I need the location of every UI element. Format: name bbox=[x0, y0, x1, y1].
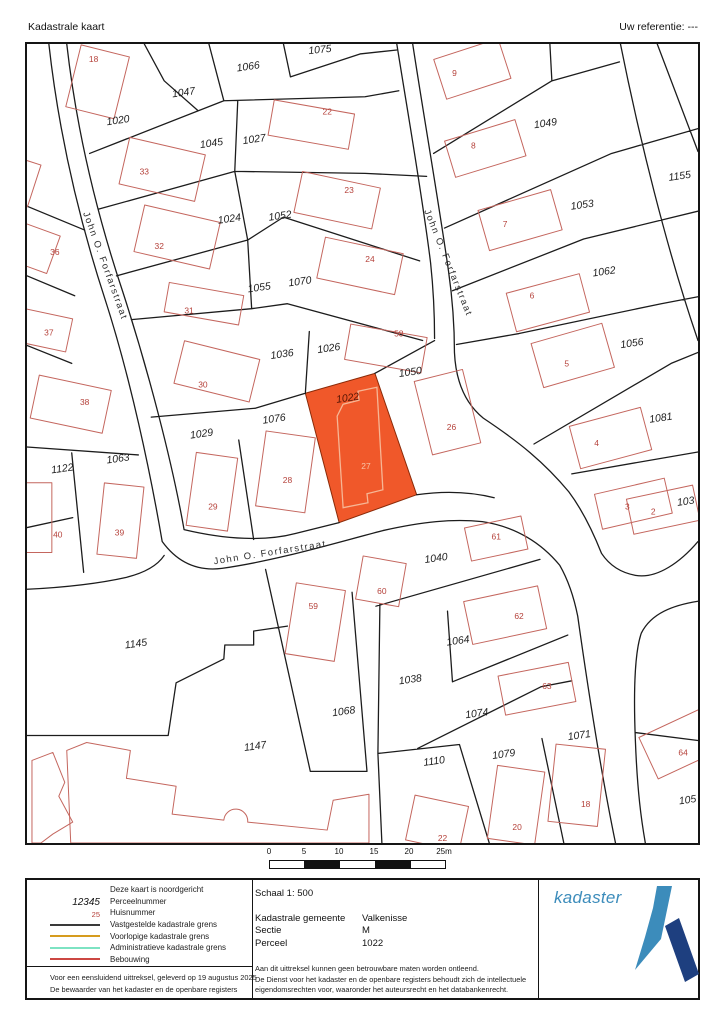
field-label: Perceel bbox=[255, 938, 362, 949]
legend-items: Deze kaart is noordgericht12345Perceelnu… bbox=[27, 884, 251, 965]
highlighted-house-number: 27 bbox=[361, 461, 371, 471]
parcel-number-label: 1040 bbox=[424, 552, 449, 566]
scalebar-segment bbox=[340, 861, 375, 868]
cadastral-map-svg: 1075106610471020104510271049115510531024… bbox=[27, 44, 698, 843]
legend-line bbox=[50, 924, 100, 926]
parcel-number-label: 1122 bbox=[51, 462, 75, 476]
map-canvas: 1075106610471020104510271049115510531024… bbox=[25, 42, 700, 845]
footer-line: De Dienst voor het kadaster en de openba… bbox=[255, 975, 526, 986]
house-number-label: 64 bbox=[678, 747, 688, 757]
legend-line-symbol bbox=[40, 947, 100, 949]
parcel-number-label: 1063 bbox=[106, 452, 131, 466]
logo-dark-shape bbox=[665, 918, 699, 982]
legend-item-label: Administratieve kadastrale grens bbox=[110, 943, 226, 952]
house-number-label: 63 bbox=[542, 681, 552, 691]
house-number-label: 59 bbox=[309, 601, 319, 611]
legend-box: Deze kaart is noordgericht12345Perceelnu… bbox=[25, 878, 700, 1000]
parcel-number-label: 1068 bbox=[331, 705, 356, 719]
legend-line-symbol bbox=[40, 958, 100, 960]
parcel-number-label: 1036 bbox=[270, 348, 295, 362]
parcel-number-label: 1110 bbox=[423, 755, 446, 769]
parcel-number-label: 103 bbox=[676, 496, 695, 509]
field-perceel: Perceel 1022 bbox=[255, 937, 407, 950]
parcel-number-label: 1074 bbox=[465, 707, 490, 721]
house-number-label: 30 bbox=[198, 379, 208, 389]
parcel-number-label: 1052 bbox=[268, 210, 293, 224]
parcel-number-label: 1079 bbox=[492, 748, 517, 762]
legend-symbol: 25 bbox=[40, 904, 100, 922]
house-number-label: 37 bbox=[44, 328, 54, 338]
house-number-label: 9 bbox=[452, 68, 457, 78]
scale-text: Schaal 1: 500 bbox=[255, 888, 313, 899]
page-title: Kadastrale kaart bbox=[28, 21, 104, 33]
street-name-label: John O. Forfarstraat bbox=[421, 208, 474, 318]
parcel-number-label: 1056 bbox=[620, 337, 645, 351]
house-number-label: 39 bbox=[115, 528, 125, 538]
field-gemeente: Kadastrale gemeente Valkenisse bbox=[255, 912, 407, 925]
scalebar-tick: 5 bbox=[302, 847, 306, 856]
house-number-label: 58 bbox=[394, 329, 404, 339]
parcel-number-label: 1026 bbox=[317, 342, 342, 356]
legend-item: Bebouwing bbox=[27, 954, 251, 966]
house-number-label: 6 bbox=[530, 291, 535, 301]
legend-item-label: Bebouwing bbox=[110, 955, 150, 964]
cadastral-map-page: Kadastrale kaart Uw referentie: --- bbox=[0, 0, 724, 1024]
house-number-label: 18 bbox=[581, 799, 591, 809]
house-number-label: 24 bbox=[365, 254, 375, 264]
reference-label: Uw referentie: --- bbox=[619, 21, 698, 33]
footer-line: Voor een eensluidend uittreksel, gelever… bbox=[50, 972, 257, 984]
footer-right-text: Aan dit uittreksel kunnen geen betrouwba… bbox=[255, 964, 526, 996]
corner-building-outline bbox=[32, 752, 73, 843]
parcel-number-label: 1147 bbox=[243, 740, 268, 754]
scalebar-segment bbox=[411, 861, 445, 868]
footer-left-text: Voor een eensluidend uittreksel, gelever… bbox=[50, 972, 257, 995]
legend-line bbox=[50, 958, 100, 960]
parcel-number-label: 1155 bbox=[668, 170, 692, 184]
field-label: Sectie bbox=[255, 925, 362, 936]
legend-item-label: Deze kaart is noordgericht bbox=[110, 885, 203, 894]
footer-line: De bewaarder van het kadaster en de open… bbox=[50, 984, 257, 996]
field-sectie: Sectie M bbox=[255, 925, 407, 938]
house-number-label: 2 bbox=[651, 507, 656, 517]
legend-divider-3 bbox=[27, 966, 252, 967]
legend-item: Administratieve kadastrale grens bbox=[27, 942, 251, 954]
parcel-number-label: 1027 bbox=[242, 133, 268, 147]
house-number-label: 40 bbox=[53, 530, 63, 540]
field-value: 1022 bbox=[362, 938, 383, 949]
house-number-label: 26 bbox=[447, 422, 457, 432]
street-labels-layer: John O. ForfarstraatJohn O. Forfarstraat… bbox=[80, 208, 474, 567]
scalebar-tick: 0 bbox=[267, 847, 271, 856]
house-number-label: 31 bbox=[184, 306, 194, 316]
house-number-label: 22 bbox=[323, 107, 333, 117]
legend-line-symbol bbox=[40, 935, 100, 937]
highlighted-parcel bbox=[305, 373, 416, 522]
scalebar-ticks: 0510152025m bbox=[269, 847, 445, 858]
footer-line: eigendomsrechten voor, waaronder het aut… bbox=[255, 985, 526, 996]
parcel-number-label: 1049 bbox=[533, 117, 558, 131]
scalebar-tick: 15 bbox=[370, 847, 379, 856]
house-number-label: 18 bbox=[89, 54, 99, 64]
field-value: M bbox=[362, 925, 370, 936]
kadaster-logo: kadaster bbox=[538, 880, 702, 998]
highlighted-parcel-group bbox=[305, 373, 416, 522]
parcel-number-label: 105 bbox=[678, 794, 697, 807]
scalebar-bar bbox=[269, 860, 446, 869]
house-number-label: 60 bbox=[377, 586, 387, 596]
house-number-label: 28 bbox=[283, 475, 293, 485]
legend-item-label: Perceelnummer bbox=[110, 897, 166, 906]
house-number-label: 61 bbox=[492, 532, 502, 542]
legend-line bbox=[50, 947, 100, 949]
parcel-number-label: 1050 bbox=[398, 366, 423, 380]
parcel-number-label: 1053 bbox=[570, 199, 595, 213]
scalebar-tick: 20 bbox=[405, 847, 414, 856]
house-number-label: 22 bbox=[438, 833, 448, 843]
parcel-number-label: 1045 bbox=[199, 137, 224, 151]
legend-line bbox=[50, 935, 100, 937]
house-number-label: 33 bbox=[140, 166, 150, 176]
street-name-label: John O. Forfarstraat bbox=[80, 210, 129, 321]
parcel-info-fields: Kadastrale gemeente Valkenisse Sectie M … bbox=[255, 912, 407, 950]
legend-sample-text: 25 bbox=[92, 910, 100, 919]
house-number-label: 62 bbox=[514, 611, 524, 621]
house-number-label: 4 bbox=[594, 438, 599, 448]
large-building-outline bbox=[67, 743, 369, 843]
house-number-label: 29 bbox=[208, 502, 218, 512]
parcel-number-label: 1075 bbox=[308, 44, 332, 57]
kadaster-logo-mark bbox=[538, 880, 702, 998]
parcel-number-label: 1024 bbox=[217, 213, 242, 227]
house-number-label: 23 bbox=[344, 185, 354, 195]
legend-item: 25Huisnummer bbox=[27, 907, 251, 919]
house-number-label: 20 bbox=[512, 822, 522, 832]
legend-item-label: Huisnummer bbox=[110, 908, 155, 917]
parcel-number-label: 1062 bbox=[592, 265, 617, 279]
field-label: Kadastrale gemeente bbox=[255, 913, 362, 924]
parcel-number-label: 1064 bbox=[446, 634, 471, 648]
legend-line-symbol bbox=[40, 924, 100, 926]
scalebar-segment bbox=[305, 861, 340, 868]
scalebar-tick: 25m bbox=[436, 847, 452, 856]
house-number-label: 7 bbox=[503, 219, 508, 229]
parcel-number-label: 1020 bbox=[106, 114, 131, 128]
house-number-label: 3 bbox=[625, 502, 630, 512]
house-number-label: 32 bbox=[155, 241, 165, 251]
legend-item-label: Voorlopige kadastrale grens bbox=[110, 932, 209, 941]
scalebar: 0510152025m bbox=[269, 847, 445, 873]
field-value: Valkenisse bbox=[362, 913, 407, 924]
house-number-label: 38 bbox=[80, 397, 90, 407]
street-name-label: John O. Forfarstraat bbox=[213, 539, 328, 568]
parcel-number-label: 1029 bbox=[189, 427, 214, 441]
house-number-label: 8 bbox=[471, 140, 476, 150]
parcel-number-label: 1047 bbox=[171, 86, 197, 100]
footer-line: Aan dit uittreksel kunnen geen betrouwba… bbox=[255, 964, 526, 975]
parcel-number-label: 1070 bbox=[288, 275, 313, 289]
parcel-number-label: 1066 bbox=[236, 60, 261, 74]
house-number-label: 5 bbox=[564, 358, 569, 368]
scalebar-segment bbox=[270, 861, 305, 868]
parcel-number-label: 1038 bbox=[398, 673, 423, 687]
parcel-number-label: 1071 bbox=[567, 729, 592, 743]
house-number-label: 36 bbox=[50, 247, 60, 257]
parcel-number-label: 1145 bbox=[124, 637, 148, 651]
legend-item-label: Vastgestelde kadastrale grens bbox=[110, 920, 217, 929]
legend-item: Voorlopige kadastrale grens bbox=[27, 930, 251, 942]
scalebar-segment bbox=[376, 861, 411, 868]
parcel-number-label: 1081 bbox=[649, 412, 674, 426]
parcel-number-label: 1055 bbox=[247, 281, 272, 295]
scalebar-tick: 10 bbox=[335, 847, 344, 856]
parcel-number-label: 1076 bbox=[262, 413, 287, 427]
